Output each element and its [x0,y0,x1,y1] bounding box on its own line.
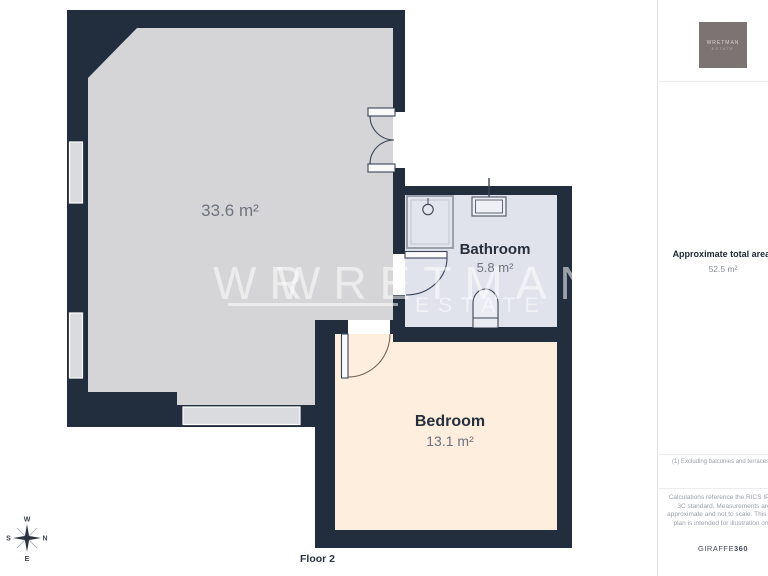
total-area-value: 52.5 m² [660,264,768,274]
floorplan-page: WR WRETMAN ESTATE 33.6 m² Bathroom 5.8 m… [0,0,768,576]
window-left-upper [70,142,83,203]
floorplan-drawing [0,0,655,576]
sidebar-divider-2 [658,454,768,455]
window-left-lower [70,313,83,378]
compass-n: N [42,536,47,543]
compass-icon: W N E S [5,513,49,563]
window-bottom [183,407,300,425]
agency-logo-subtext: ESTATE [712,47,735,51]
toilet [473,289,498,327]
bedroom-floor [335,332,557,530]
floor-label: Floor 2 [275,553,360,565]
sidebar-divider-3 [658,488,768,489]
brand-name: GIRAFFE [698,544,734,553]
total-area-label-text: Approximate total area [673,249,768,259]
giraffe360-brand: GIRAFFE360 [660,544,768,553]
compass-s: S [6,536,11,543]
sidebar-divider-1 [658,81,768,82]
area-footnote: (1) Excluding balconies and terraces [660,459,768,465]
shower [407,196,453,248]
brand-suffix: 360 [734,544,748,553]
disclaimer-text: Calculations reference the RICS IPMS 3C … [666,494,768,528]
total-area-label: Approximate total area1 [660,249,768,259]
agency-logo: WRETMAN ESTATE [699,22,747,68]
sink [472,178,506,216]
compass-w: W [24,517,31,524]
agency-logo-text: WRETMAN [707,40,740,46]
watermark-rule [228,303,398,306]
sidebar-divider-vertical [657,0,658,576]
compass-e: E [25,556,30,563]
